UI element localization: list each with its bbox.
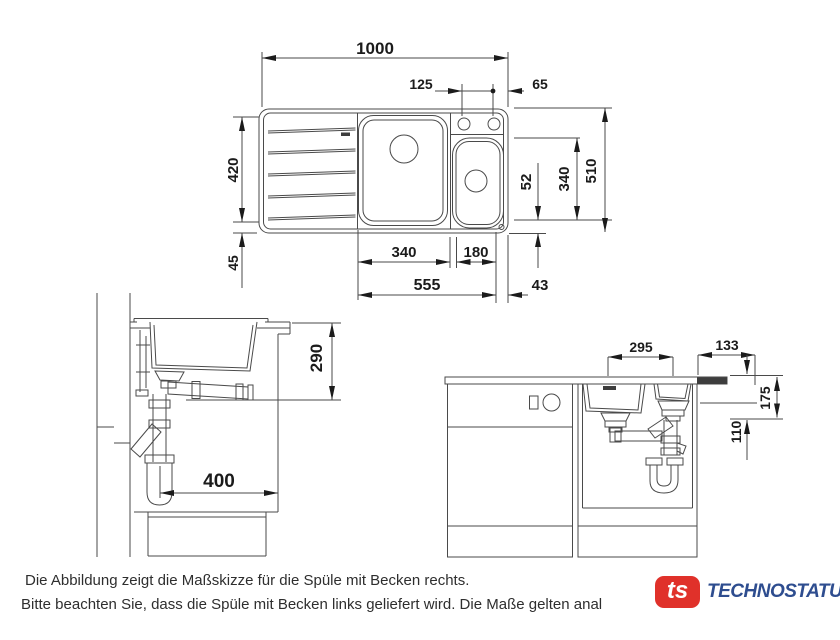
top-view: 1000 125 65 420 45 52 340 510	[225, 39, 612, 303]
control-knob-icon	[543, 394, 560, 411]
dim-cabinet-depth-label: 400	[203, 471, 235, 492]
front-view: 295 133 175 110	[445, 337, 783, 557]
main-bowl	[359, 116, 448, 226]
dishwasher-cabinet	[448, 384, 573, 557]
dim-outlet-upper-label: 175	[757, 386, 773, 410]
dim-height-below-worktop-label: 290	[307, 344, 326, 372]
wall	[97, 293, 130, 557]
drainboard	[268, 113, 358, 229]
bowl-section-side	[136, 322, 257, 396]
small-drain-icon	[465, 170, 487, 192]
dim-tap-spacing-label: 125	[409, 76, 433, 92]
small-bowl	[453, 138, 505, 230]
dim-bowls-total-label: 555	[414, 277, 441, 294]
side-view: 290 400	[97, 293, 341, 557]
bowls-front-section	[583, 384, 691, 413]
dim-bowl-to-edge-label: 43	[532, 277, 549, 294]
measurement-sheet: 1000 125 65 420 45 52 340 510	[0, 0, 840, 640]
tap-hole-right-icon	[488, 118, 500, 130]
worktop-front	[445, 377, 727, 384]
control-square	[530, 396, 539, 409]
technical-drawing: 1000 125 65 420 45 52 340 510	[0, 0, 840, 566]
dim-drain-spacing-label: 295	[629, 339, 653, 355]
tap-hole-left-icon	[458, 118, 470, 130]
dim-main-bowl-width-label: 340	[391, 244, 416, 261]
dim-total-depth-label: 510	[583, 158, 600, 183]
base-cabinet-side	[134, 334, 278, 556]
dim-outlet-lower-label: 110	[728, 420, 744, 443]
waste-pipes-front	[601, 401, 689, 493]
dim-drainer-depth-label: 420	[225, 157, 242, 182]
main-drain-icon	[390, 135, 418, 163]
dim-total-width-label: 1000	[356, 39, 394, 58]
dim-rear-gap-label: 52	[518, 174, 535, 191]
technostatus-logo-text: TECHNOSTATUS	[707, 581, 840, 603]
technostatus-logo-mark-icon: ts	[655, 576, 700, 608]
technostatus-logo: ts TECHNOSTATUS	[655, 576, 840, 608]
tap-deck	[451, 113, 504, 229]
caption-line-2: Bitte beachten Sie, dass die Spüle mit B…	[0, 593, 653, 617]
dim-small-bowl-width-label: 180	[463, 244, 488, 261]
brand-mark	[341, 133, 350, 137]
dim-right-offset-label: 133	[715, 337, 739, 353]
dim-bowl-depth-label: 340	[556, 166, 573, 191]
dim-front-edge-label: 45	[225, 255, 241, 271]
dim-tap-edge-label: 65	[532, 76, 548, 92]
